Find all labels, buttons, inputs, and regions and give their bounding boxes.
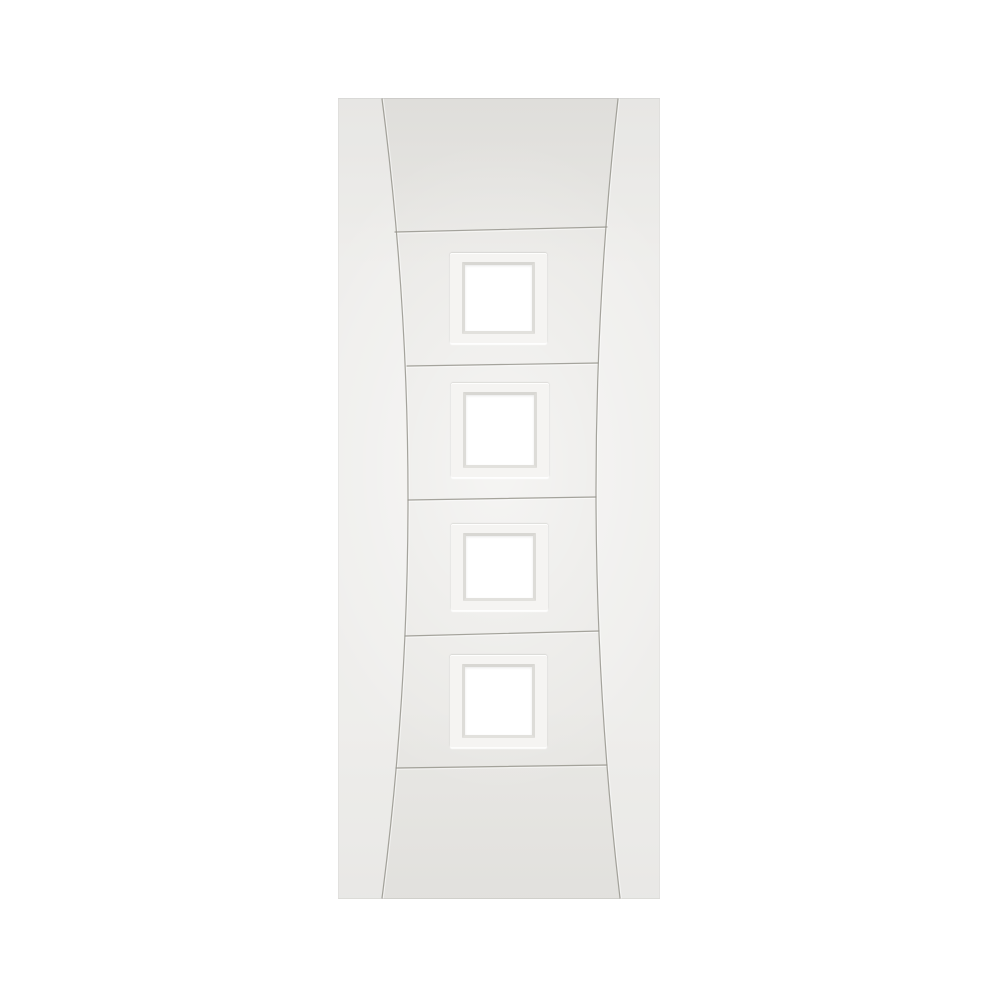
glazed-lite-1: [450, 253, 547, 343]
glass-pane-2: [466, 395, 534, 465]
glazed-lite-2: [451, 383, 549, 477]
glass-pane-4: [465, 667, 532, 735]
glazing-bead-2: [463, 392, 537, 468]
glazing-bead-3: [463, 533, 536, 601]
glazing-bead-1: [462, 262, 535, 334]
glass-pane-3: [466, 536, 533, 598]
glazing-bead-4: [462, 664, 535, 738]
photo-background: [0, 0, 1000, 1000]
left-stile-sheen: [338, 98, 408, 899]
glass-pane-1: [465, 265, 532, 331]
glazed-lite-4: [450, 655, 547, 747]
door-slab: [338, 98, 660, 899]
glazed-lite-3: [451, 524, 548, 610]
door-grooves: [338, 98, 660, 899]
right-stile-sheen: [596, 98, 660, 899]
